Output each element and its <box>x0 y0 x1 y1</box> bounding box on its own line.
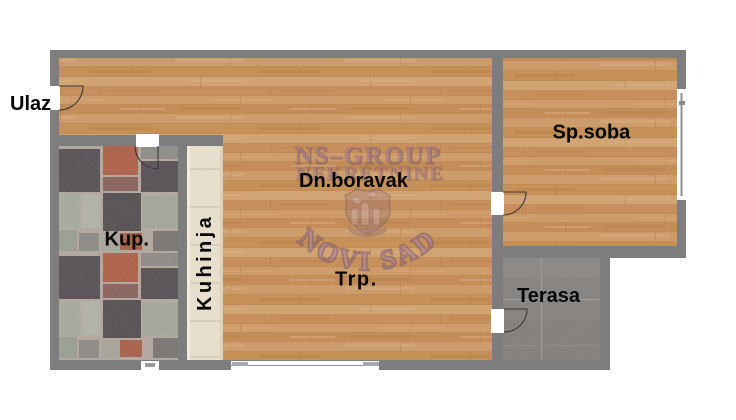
svg-text:Kuhinja: Kuhinja <box>194 214 216 311</box>
svg-text:Sp.soba: Sp.soba <box>553 122 632 144</box>
svg-text:Trp.: Trp. <box>335 269 378 291</box>
svg-text:Kup.: Kup. <box>105 229 149 251</box>
svg-text:Ulaz: Ulaz <box>10 93 51 115</box>
svg-text:Terasa: Terasa <box>517 285 581 307</box>
svg-text:Dn.boravak: Dn.boravak <box>299 170 409 192</box>
